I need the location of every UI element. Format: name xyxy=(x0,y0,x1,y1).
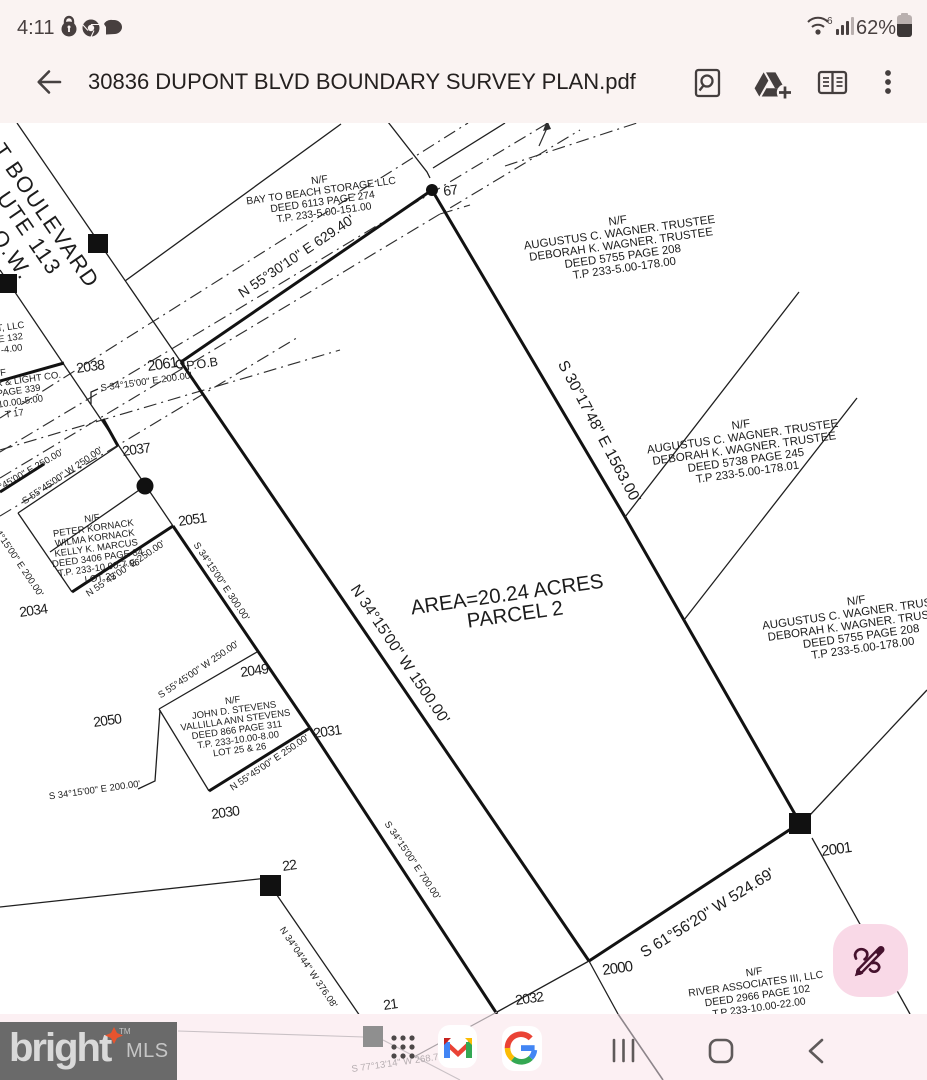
svg-text:TM: TM xyxy=(119,1027,131,1036)
svg-text:62%: 62% xyxy=(856,17,896,39)
svg-text:bright: bright xyxy=(9,1026,112,1070)
svg-text:N/F: N/F xyxy=(745,966,763,979)
svg-text:30836 DUPONT BLVD BOUNDARY SUR: 30836 DUPONT BLVD BOUNDARY SURVEY PLAN.p… xyxy=(88,69,637,94)
svg-text:4:11: 4:11 xyxy=(17,17,54,39)
svg-text:6: 6 xyxy=(827,16,833,27)
svg-text:MLS: MLS xyxy=(126,1040,169,1062)
